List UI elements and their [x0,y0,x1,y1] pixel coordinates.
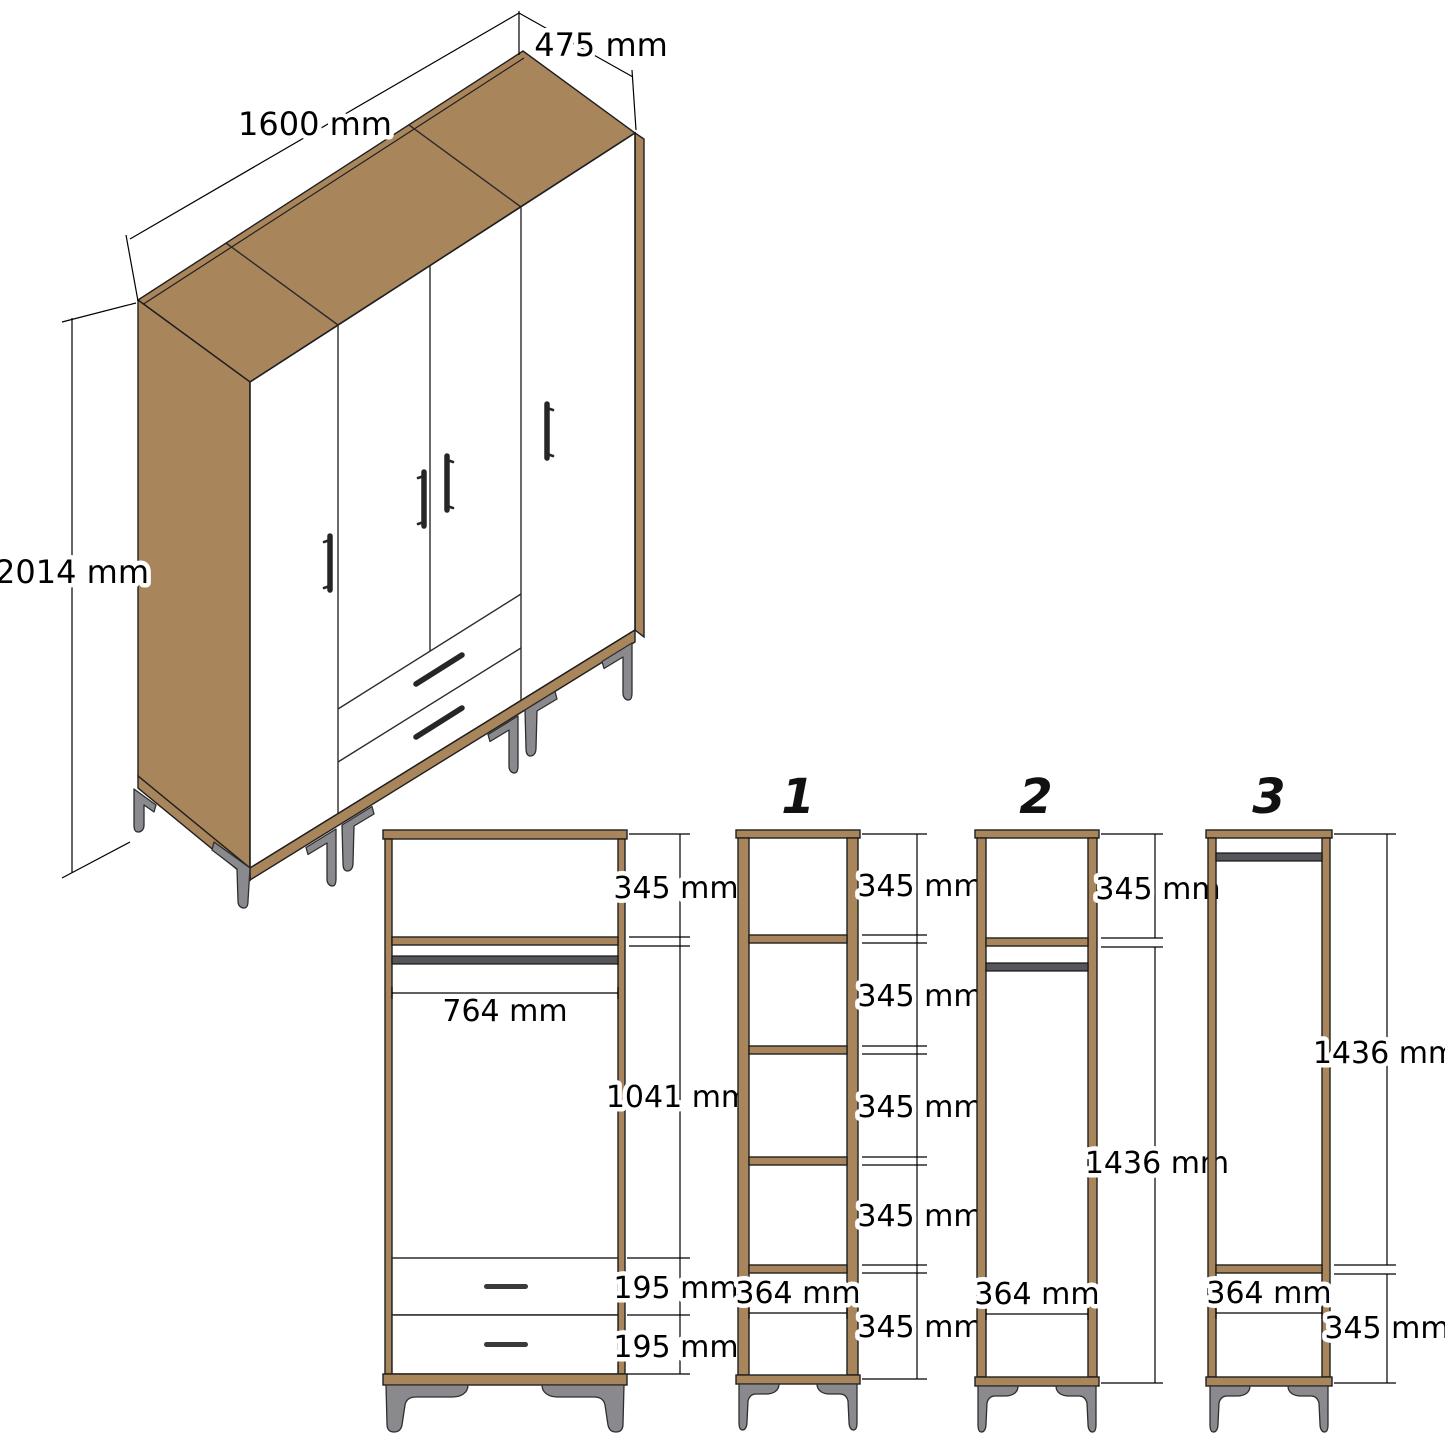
s1-shelf-1 [749,935,847,943]
front-hanging-space-label: 1041 mm [606,1080,750,1115]
wardrobe-side-panel [138,300,250,868]
s3-hanging-rod [1216,853,1322,861]
front-base-panel [383,1374,627,1385]
s2-leg-right [1056,1386,1096,1432]
width-ext-left [126,235,138,301]
s1-top-panel [736,830,860,838]
front-drawer-1-label: 195 mm [613,1271,738,1306]
s1-base-panel [736,1375,860,1384]
s2-hanging-rod [986,963,1088,971]
s3-leg-right [1288,1386,1328,1432]
section-1-view: 1 345 mm 345 mm 345 mm [735,769,982,1430]
section-3-number: 3 [1252,769,1285,825]
s3-hanging-space-label: 1436 mm [1313,1036,1445,1071]
s1-leg-left [739,1384,779,1430]
section-2-view: 2 345 mm 1436 mm 364 mm [974,769,1229,1432]
s2-top-compartment-label: 345 mm [1095,872,1220,907]
section-3-view: 3 1436 mm 345 mm 364 mm [1206,769,1445,1432]
front-drawer-handle-1 [484,1284,528,1289]
front-left-panel [385,839,392,1374]
s2-inner-width-label: 364 mm [974,1277,1099,1312]
s3-base-panel [1206,1377,1332,1386]
front-elevation-view: 345 mm 764 mm 1041 mm 195 mm 195 mm [383,830,750,1432]
front-leg-left [386,1385,468,1432]
front-hanging-rod [392,956,618,964]
front-leg-right [542,1385,624,1432]
s3-inner-width-label: 364 mm [1206,1276,1331,1311]
width-dim-label: 1600 mm [238,105,392,143]
section-2-number: 2 [1019,769,1052,825]
wardrobe-right-edge [635,133,644,637]
s3-leg-left [1210,1386,1250,1432]
s2-shelf [986,938,1088,946]
s1-dimensions: 345 mm 345 mm 345 mm 345 mm 345 mm 364 m… [735,834,982,1379]
s1-compartment-label-4: 345 mm [857,1199,982,1234]
front-shelf [392,937,618,945]
s1-compartment-label-5: 345 mm [857,1310,982,1345]
s2-top-panel [975,830,1099,838]
isometric-view: 1600 mm 475 mm 2014 mm [0,11,668,908]
s2-base-panel [975,1377,1099,1386]
s2-leg-left [978,1386,1018,1432]
front-drawer-2-label: 195 mm [613,1330,738,1365]
s1-compartment-label-2: 345 mm [857,979,982,1014]
s1-leg-right [817,1384,857,1430]
depth-ext-right [632,70,636,130]
s1-shelf-2 [749,1046,847,1054]
s3-bottom-compartment-label: 345 mm [1324,1311,1445,1346]
s1-shelf-4 [749,1265,847,1273]
depth-dim-label: 475 mm [534,26,668,64]
s3-shelf [1216,1265,1322,1273]
wardrobe-diagram: 1600 mm 475 mm 2014 mm 345 mm [0,0,1445,1445]
s1-shelf-3 [749,1157,847,1165]
height-ext-top [62,303,136,322]
height-dim-label: 2014 mm [0,553,149,591]
s1-compartment-label-1: 345 mm [857,869,982,904]
technical-drawing-page: 1600 mm 475 mm 2014 mm 345 mm [0,0,1445,1445]
s3-top-panel [1206,830,1332,838]
s1-inner-width-label: 364 mm [735,1276,860,1311]
front-top-panel [383,830,627,839]
s1-compartment-label-3: 345 mm [857,1090,982,1125]
s2-dimensions: 345 mm 1436 mm 364 mm [974,834,1229,1383]
front-top-compartment-label: 345 mm [613,871,738,906]
front-inner-width-label: 764 mm [442,994,567,1029]
section-1-number: 1 [781,769,814,825]
front-drawer-handle-2 [484,1342,528,1347]
